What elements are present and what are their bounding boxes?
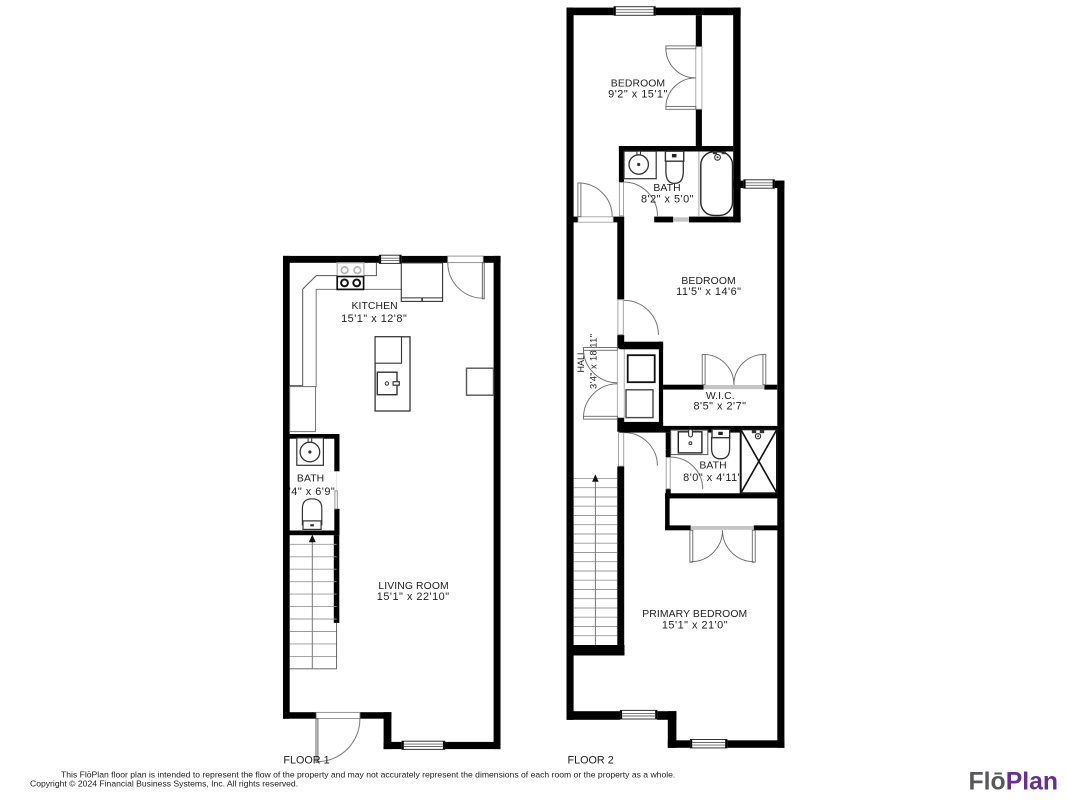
svg-text:BATH: BATH	[699, 461, 726, 472]
svg-text:8'5" x 2'7": 8'5" x 2'7"	[693, 400, 746, 412]
svg-text:FLOOR 1: FLOOR 1	[283, 755, 329, 767]
svg-text:BATH: BATH	[297, 473, 324, 484]
svg-text:FLOOR 2: FLOOR 2	[568, 755, 614, 767]
svg-text:FlōPlan: FlōPlan	[969, 769, 1059, 796]
svg-text:3'4" x 18'11": 3'4" x 18'11"	[588, 334, 598, 390]
svg-text:9'2" x 15'1": 9'2" x 15'1"	[608, 89, 668, 101]
svg-text:15'1" x 22'10": 15'1" x 22'10"	[377, 591, 450, 603]
svg-text:'4" x 6'9": '4" x 6'9"	[289, 486, 336, 498]
svg-text:BATH: BATH	[653, 183, 680, 194]
svg-text:11'5" x 14'6": 11'5" x 14'6"	[676, 286, 741, 298]
svg-text:HALL: HALL	[576, 350, 586, 373]
svg-text:15'1" x 21'0": 15'1" x 21'0"	[662, 619, 728, 631]
svg-text:15'1" x 12'8": 15'1" x 12'8"	[341, 313, 407, 325]
svg-text:KITCHEN: KITCHEN	[351, 301, 397, 312]
svg-text:Copyright © 2024 Financial Bus: Copyright © 2024 Financial Business Syst…	[30, 778, 298, 788]
svg-text:8'0" x 4'11": 8'0" x 4'11"	[683, 472, 742, 484]
svg-text:8'2" x 5'0": 8'2" x 5'0"	[641, 194, 694, 206]
